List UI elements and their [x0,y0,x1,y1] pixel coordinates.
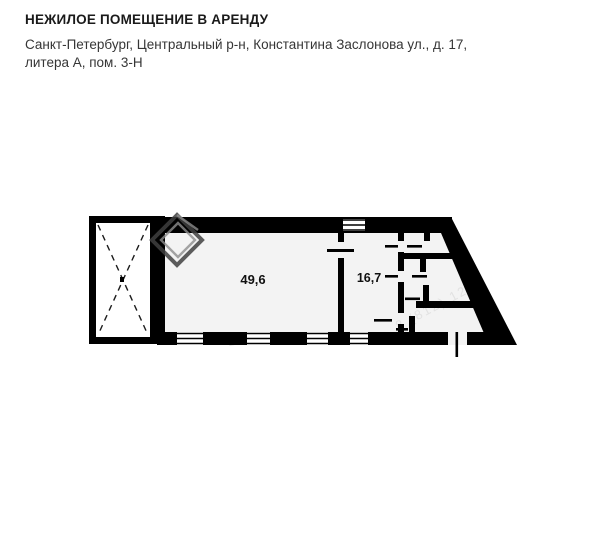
stair-center-mark [120,277,124,282]
wall-bottom [328,332,350,345]
wall-bottom [157,332,177,345]
room-area-small: 16,7 [357,271,381,285]
window-bottom-4 [350,332,368,345]
wall-h1 [398,253,455,259]
stair-wall-left [89,216,96,344]
window-top [343,219,365,231]
stair-wall-bottom [89,337,157,344]
wall-stub-mid [420,259,426,272]
wall-bottom [368,332,448,345]
wall-bottom [467,332,500,345]
door-opening-mark [396,328,408,331]
wall-va [398,233,404,241]
room-area-large: 49,6 [240,272,265,287]
door-leaf [456,332,459,357]
wall-stub-bottom [409,316,415,332]
stair-shaft [89,216,165,344]
wall-bottom [270,332,307,345]
wall-stub-top [424,233,430,241]
partition-wall [338,258,344,332]
wall-bottom [203,332,247,345]
door-opening-mark [374,319,392,322]
wall-h2 [416,301,478,308]
stair-wall-top [89,216,157,223]
floor-plan-interior [165,233,490,332]
wall-stub-up [423,285,429,301]
door-opening-mark [327,249,354,252]
door-opening-mark [385,245,398,248]
door-opening-mark [405,298,420,301]
floor-plan: 8 (812) 12-2 21 [0,0,600,538]
wall-va [398,282,404,313]
partition-wall [338,233,344,242]
door-opening-mark [407,245,422,248]
door-opening-mark [385,275,398,278]
wall-top [157,217,452,233]
entrance-door [448,332,467,357]
window-bottom-3 [307,332,328,345]
door-opening-mark [412,275,427,278]
window-bottom-2 [247,332,270,345]
window-bottom-1 [177,332,203,345]
